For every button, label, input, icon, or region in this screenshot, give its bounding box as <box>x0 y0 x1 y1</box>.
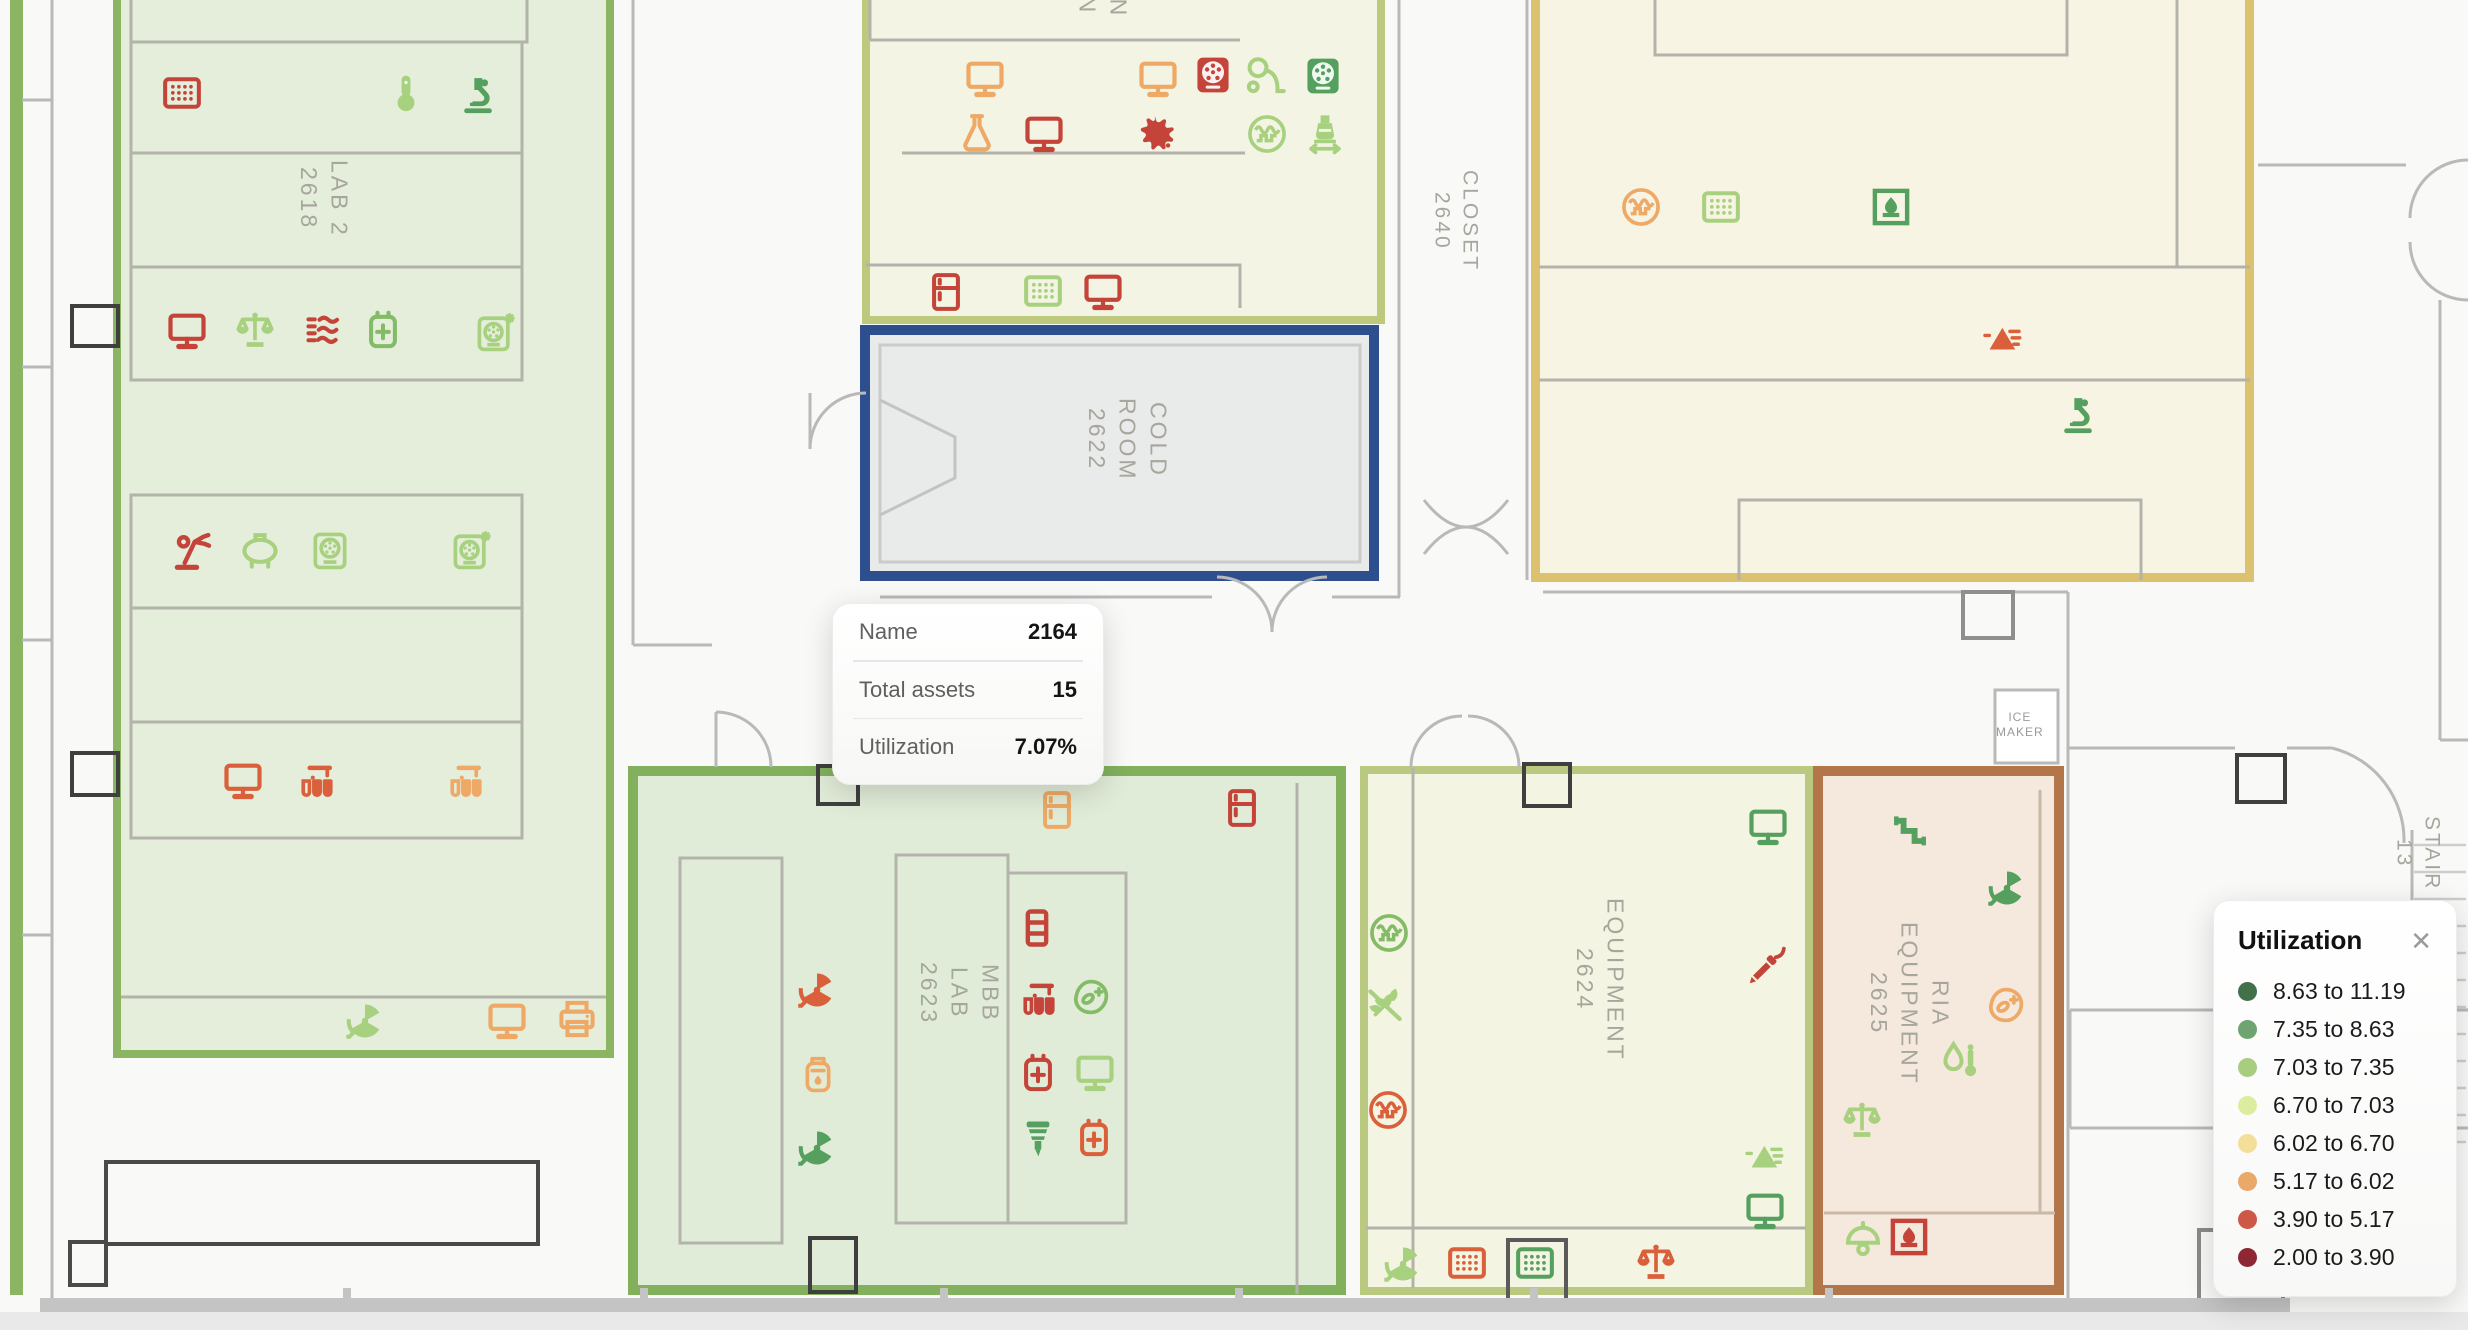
legend-color-dot <box>2238 1134 2257 1153</box>
legend-range-label: 7.35 to 8.63 <box>2273 1016 2395 1043</box>
room-label-lab-2618: LAB 22618 <box>292 160 356 238</box>
area-label-closet-2640: CLOSET2640 <box>1426 170 1485 272</box>
legend-color-dot <box>2238 1020 2257 1039</box>
legend-range-label: 5.17 to 6.02 <box>2273 1168 2395 1195</box>
legend-range-label: 6.70 to 7.03 <box>2273 1092 2395 1119</box>
tooltip-row: Name2164 <box>833 604 1103 660</box>
tooltip-label: Name <box>859 619 918 645</box>
legend-items: 8.63 to 11.197.35 to 8.637.03 to 7.356.7… <box>2238 972 2432 1276</box>
room-label-cold-room-2622: COLDROOM2622 <box>1080 398 1174 482</box>
legend-color-dot <box>2238 1172 2257 1191</box>
legend-range-label: 2.00 to 3.90 <box>2273 1244 2395 1271</box>
legend-item: 3.90 to 5.17 <box>2238 1200 2432 1238</box>
tooltip-row: Total assets15 <box>833 662 1103 718</box>
tooltip-value: 7.07% <box>1015 734 1077 760</box>
legend-range-label: 6.02 to 6.70 <box>2273 1130 2395 1157</box>
legend-item: 7.35 to 8.63 <box>2238 1010 2432 1048</box>
legend-range-label: 7.03 to 7.35 <box>2273 1054 2395 1081</box>
legend-color-dot <box>2238 1248 2257 1267</box>
legend-range-label: 3.90 to 5.17 <box>2273 1206 2395 1233</box>
legend-range-label: 8.63 to 11.19 <box>2273 978 2406 1005</box>
tooltip-value: 15 <box>1053 677 1077 703</box>
floorplan-viewport[interactable]: LAB 22618PROTEINSTATION2621COLDROOM2622M… <box>0 0 2468 1330</box>
legend-item: 2.00 to 3.90 <box>2238 1238 2432 1276</box>
labels-layer: LAB 22618PROTEINSTATION2621COLDROOM2622M… <box>0 0 2468 1330</box>
close-icon[interactable]: ✕ <box>2410 928 2432 954</box>
legend-color-dot <box>2238 982 2257 1001</box>
tooltip-row: Utilization7.07% <box>833 719 1103 775</box>
tooltip-rows: Name2164Total assets15Utilization7.07% <box>833 604 1103 775</box>
utilization-legend: Utilization ✕ 8.63 to 11.197.35 to 8.637… <box>2213 900 2457 1297</box>
room-label-equipment-2624: EQUIPMENT2624 <box>1568 898 1632 1062</box>
tooltip-label: Utilization <box>859 734 954 760</box>
legend-color-dot <box>2238 1058 2257 1077</box>
legend-color-dot <box>2238 1210 2257 1229</box>
tooltip-value: 2164 <box>1028 619 1077 645</box>
area-label-stair-13: STAIR13 <box>2388 816 2447 891</box>
hover-tooltip: Name2164Total assets15Utilization7.07% <box>832 603 1104 785</box>
area-label-ice-maker: ICEMAKER <box>1996 710 2044 740</box>
legend-item: 8.63 to 11.19 <box>2238 972 2432 1010</box>
legend-item: 5.17 to 6.02 <box>2238 1162 2432 1200</box>
tooltip-label: Total assets <box>859 677 975 703</box>
legend-item: 6.70 to 7.03 <box>2238 1086 2432 1124</box>
legend-title: Utilization <box>2238 925 2362 956</box>
room-label-protein-station-2621: PROTEINSTATION2621 <box>1040 0 1134 18</box>
room-label-mbb-lab-2623: MBBLAB2623 <box>912 962 1006 1025</box>
legend-item: 7.03 to 7.35 <box>2238 1048 2432 1086</box>
room-label-ria-equipment-2625: RIAEQUIPMENT2625 <box>1862 922 1956 1086</box>
legend-item: 6.02 to 6.70 <box>2238 1124 2432 1162</box>
legend-color-dot <box>2238 1096 2257 1115</box>
